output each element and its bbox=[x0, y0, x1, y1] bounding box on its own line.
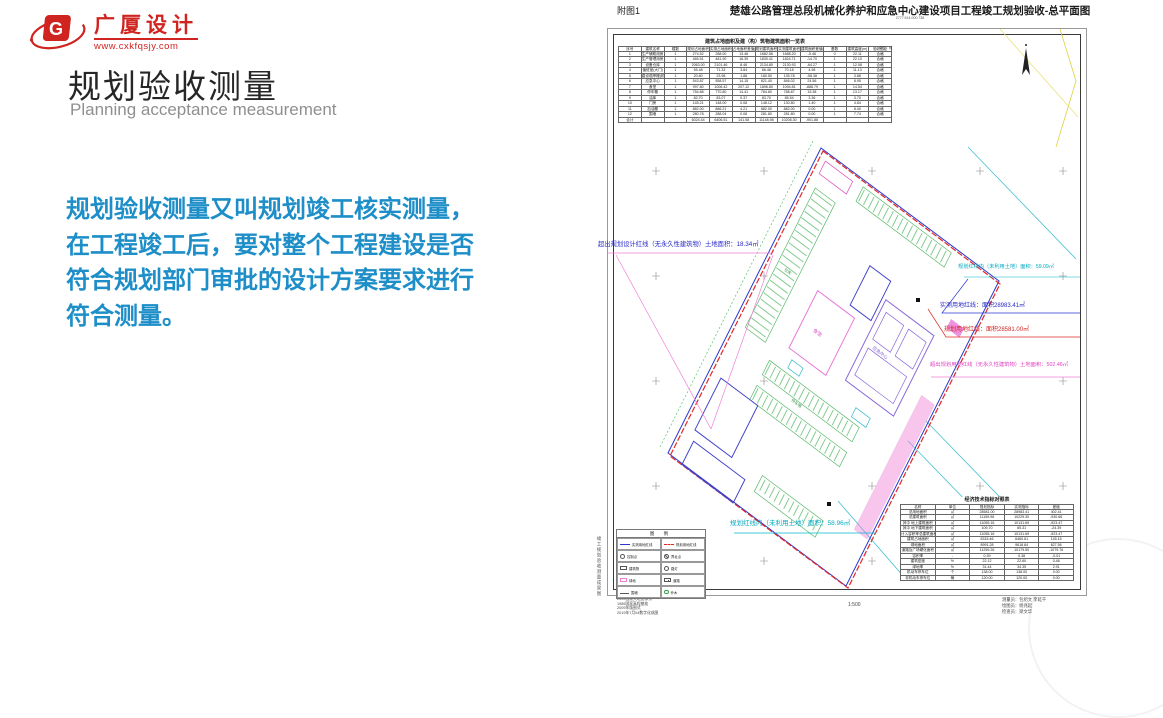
legend: 图 例 实测用地红线 规划用地红线 控制点 界址点 建筑物 路灯 绿地 道路 围… bbox=[616, 529, 706, 599]
area-table-header-cell: 实测建筑面积(㎡) bbox=[778, 46, 801, 51]
drawing-figure-label: 附图1 bbox=[617, 4, 640, 17]
cell: 辆 bbox=[935, 575, 970, 580]
control-point-icon bbox=[620, 554, 625, 559]
annotation-left-overrun: 超出规划设计红线（无永久性建筑物）土地面积：18.34㎡ bbox=[598, 239, 759, 248]
cell: 其中 地下建筑面积 bbox=[901, 526, 936, 531]
area-table-header-cell: 建筑高度(m) bbox=[846, 46, 869, 51]
legend-label: 绿地 bbox=[629, 578, 636, 583]
area-table: 建筑占地面积及建（构）筑物建筑面积一览表 单位：㎡ 序号建筑名称幢数规划占地面积… bbox=[618, 39, 892, 123]
body-text: 规划验收测量又叫规划竣工核实测量， 在工程竣工后，要对整个工程建设是否 符合规划… bbox=[66, 192, 546, 334]
cell bbox=[869, 117, 892, 122]
drawing-title-subcode: 2777.914-000.738 bbox=[690, 16, 1130, 20]
cell: -901.88 bbox=[801, 117, 824, 122]
annotation-measured-redline: 实测用地红线：面积28983.41㎡ bbox=[940, 300, 1025, 309]
road-icon bbox=[664, 578, 671, 583]
wall-icon bbox=[620, 591, 629, 594]
logo-mark-icon: G bbox=[28, 8, 86, 58]
area-table-header-cell: 实测占地面积(㎡) bbox=[710, 46, 733, 51]
annotation-overrun-south: 超出规划用地红线（无永久性建筑物）土地面积：502.46㎡ bbox=[930, 360, 1068, 368]
legend-label: 围墙 bbox=[631, 590, 638, 595]
cell: 其中 地上建筑面积 bbox=[901, 520, 936, 525]
cell: 6406.51 bbox=[710, 117, 733, 122]
legend-label: 建筑物 bbox=[629, 566, 639, 571]
legend-label: 实测用地红线 bbox=[632, 542, 652, 547]
cell: 6024.44 bbox=[687, 117, 710, 122]
legend-label: 界址点 bbox=[671, 554, 681, 559]
cell: 计入容积率总建筑面积 bbox=[901, 531, 936, 536]
legend-label: 乔木 bbox=[671, 590, 678, 595]
leader-left-overrun bbox=[608, 253, 773, 429]
cell: 120.00 bbox=[970, 575, 1005, 580]
monument-marker-1 bbox=[916, 298, 920, 302]
plan-label-canteen: 食堂 bbox=[812, 327, 823, 339]
footer-datum-notes: 2000国家大地坐标系 1985国家高程基准 2009年版图式 2019年7月0… bbox=[617, 597, 658, 616]
area-table-header-cell: 建筑面积差值(实测-规划) bbox=[801, 46, 824, 51]
annotation-unused-right: 规划红线内（未利用土地）面积：59.09㎡ bbox=[958, 263, 1054, 270]
north-arrow-icon bbox=[1022, 44, 1030, 75]
econ-table: 经济技术指标对照表 名称单位规划指标实测指标差值 总用地面积 ㎡ 28581.0… bbox=[900, 497, 1074, 581]
tree-icon bbox=[664, 590, 669, 595]
cell: 141.08 bbox=[732, 117, 755, 122]
area-table-header-row: 序号建筑名称幢数规划占地面积(㎡)实测占地面积(㎡)占地面积差值(㎡)规划建筑面… bbox=[619, 46, 892, 51]
brand-url: www.cxkfqsjy.com bbox=[94, 41, 198, 52]
cell bbox=[823, 117, 846, 122]
legend-title: 图 例 bbox=[617, 530, 705, 538]
drawing-sheet: 食堂 应急中心 停车棚 仓库 建筑占地面积及建（构）筑物建筑面积一览表 单位：㎡ bbox=[607, 28, 1087, 596]
cell: 非机动车停车位 bbox=[901, 575, 936, 580]
area-table-header-cell: 规划建筑面积(㎡) bbox=[755, 46, 778, 51]
measured-redline-icon bbox=[620, 544, 630, 545]
legend-label: 规划用地红线 bbox=[676, 542, 696, 547]
planned-redline-icon bbox=[664, 544, 674, 545]
area-table-header-cell: 规划占地面积(㎡) bbox=[687, 46, 710, 51]
utility-line-yellow2 bbox=[1000, 29, 1078, 117]
cell bbox=[641, 117, 664, 122]
greenland-icon bbox=[620, 578, 627, 583]
cell: 11148.98 bbox=[755, 117, 778, 122]
sheet-side-label: 竣工规划验收测量成果图 bbox=[596, 536, 602, 597]
cell bbox=[846, 117, 869, 122]
legend-label: 道路 bbox=[673, 578, 680, 583]
cell: 道路及广场硬化面积 bbox=[901, 548, 936, 553]
legend-label: 控制点 bbox=[627, 554, 637, 559]
cell: 生产管理用房 bbox=[641, 57, 664, 62]
footer-credits: 测量员：包绍文 李延千 绘图员：杨兆起 检查员：梁文华 bbox=[1002, 597, 1046, 614]
building-icon bbox=[620, 566, 627, 571]
utility-line-yellow bbox=[1056, 29, 1076, 147]
annotation-unused-bottom: 规划红线内（未利用土地）面积：58.96㎡ bbox=[730, 517, 850, 527]
econ-table-row: 非机动车停车位 辆 120.00 120.00 0.00 bbox=[901, 575, 1074, 580]
legend-label: 路灯 bbox=[671, 566, 678, 571]
area-table-row: 合计 6024.44 6406.51 141.08 11148.98 10208… bbox=[619, 117, 892, 122]
footer-scale: 1:500 bbox=[848, 602, 861, 608]
brand-name: 广厦设计 bbox=[94, 14, 198, 36]
cell: 生产辅助用房 bbox=[641, 51, 664, 56]
cell: 10208.30 bbox=[778, 117, 801, 122]
cell: 建设观摩棚(机修车间) bbox=[641, 73, 664, 78]
cell bbox=[664, 117, 687, 122]
cell: 值班室(大门) bbox=[641, 68, 664, 73]
cell: 120.00 bbox=[1004, 575, 1039, 580]
svg-text:G: G bbox=[49, 19, 63, 39]
area-table-unit-note: 单位：㎡ bbox=[879, 45, 892, 50]
street-lamp-icon bbox=[664, 566, 669, 571]
plan-label-carport: 停车棚 bbox=[791, 396, 803, 409]
area-table-header-cell: 占地面积差值(㎡) bbox=[732, 46, 755, 51]
brand-rule bbox=[94, 38, 198, 40]
slide-logo: G 广厦设计 www.cxkfqsjy.com bbox=[28, 8, 198, 58]
boundary-point-icon bbox=[664, 554, 669, 559]
cell: 合计 bbox=[619, 117, 642, 122]
monument-marker-2 bbox=[827, 502, 831, 506]
cell: 0.00 bbox=[1039, 575, 1074, 580]
page-subtitle: Planning acceptance measurement bbox=[70, 100, 337, 120]
annotation-planned-redline: 规划用地红线：面积28581.00㎡ bbox=[944, 324, 1029, 333]
